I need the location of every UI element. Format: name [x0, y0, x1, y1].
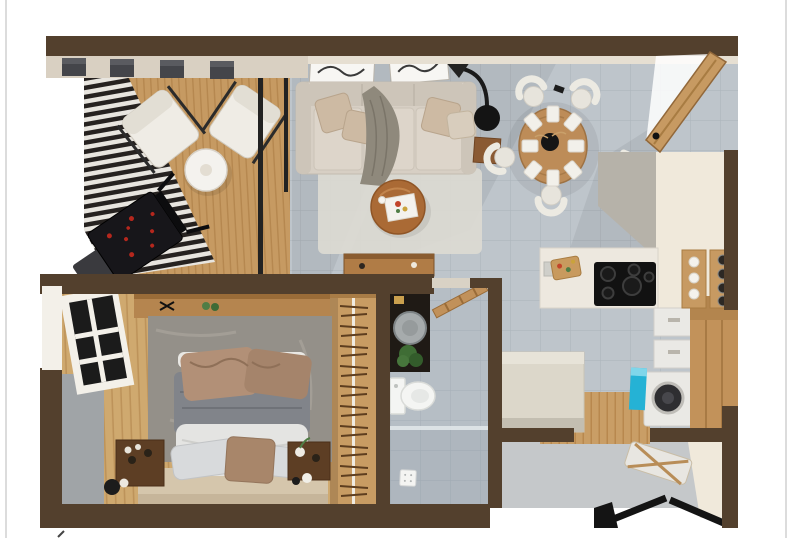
sofa	[296, 82, 476, 186]
console-table	[344, 254, 434, 276]
tray-food	[396, 209, 400, 213]
glass-wall-frame	[258, 60, 263, 276]
toss-pillow	[446, 110, 475, 139]
wall-kitchen-bottom	[502, 428, 574, 442]
tray-food	[403, 207, 408, 212]
sofa-armrest	[296, 82, 311, 174]
bottle	[689, 289, 699, 299]
wall-right-lower	[722, 406, 738, 528]
burner	[623, 277, 641, 295]
wall-kitchen-bottom	[650, 428, 724, 442]
burner	[603, 288, 614, 299]
glass-partition	[390, 426, 488, 430]
tray-food	[395, 201, 401, 207]
shower-area	[390, 430, 488, 508]
nightstand-right	[288, 438, 330, 485]
wall-bath-top	[470, 278, 488, 288]
washing-machine	[644, 372, 692, 426]
counter-run	[540, 248, 658, 308]
drawer-handle	[668, 350, 680, 354]
shelf-bottle	[211, 303, 219, 311]
cutting-board	[550, 256, 581, 281]
burner	[645, 273, 654, 282]
cooktop	[594, 262, 656, 306]
bath-door-threshold	[432, 278, 470, 288]
wall-top	[46, 36, 738, 56]
glass-wall-frame	[284, 60, 288, 192]
sink-basin	[402, 320, 418, 336]
room-living	[296, 52, 501, 276]
burner	[601, 267, 615, 281]
burner	[629, 265, 640, 276]
flower	[379, 197, 386, 204]
wall-wardrobe-bath	[376, 286, 390, 508]
card-border-right	[785, 0, 787, 538]
card-border-left	[5, 0, 7, 538]
wall-bottom	[40, 504, 490, 528]
decor-sphere	[292, 477, 300, 485]
bottle	[689, 257, 699, 267]
potted-plant	[409, 353, 423, 367]
wall-mid	[40, 274, 434, 294]
floorplan-render	[0, 0, 800, 538]
floor-plan-image	[0, 0, 800, 538]
room-wardrobe	[330, 288, 376, 510]
table-center	[200, 164, 212, 176]
decor-figure	[120, 479, 129, 488]
wall-bath-top	[390, 278, 432, 288]
accent-pillow	[225, 436, 276, 483]
door-handle	[653, 133, 660, 140]
shelf-bottle	[202, 302, 210, 310]
wall-right-upper	[724, 150, 738, 310]
soap-dish	[394, 296, 404, 304]
blue-bin	[629, 368, 647, 411]
toilet-seat	[411, 389, 429, 403]
bottle	[689, 273, 699, 283]
decor-figure	[302, 473, 312, 483]
artifact-mark	[58, 531, 64, 537]
wall-bath-kitchen	[488, 278, 502, 508]
throw-rumple	[243, 348, 313, 400]
lamp-shade	[474, 105, 500, 131]
kitchen-island	[500, 352, 584, 432]
gray-accent-wall	[62, 374, 104, 506]
shower-drain	[400, 470, 417, 487]
potted-plant	[397, 355, 409, 367]
outer-panel	[42, 286, 62, 370]
vanity	[390, 288, 430, 372]
room-bedroom	[60, 286, 332, 508]
decor-tray	[384, 194, 418, 222]
flush-button	[394, 384, 398, 388]
decor-sphere	[104, 479, 120, 495]
wall-left	[40, 368, 62, 512]
washer-drum	[662, 392, 674, 404]
drawer-handle	[668, 318, 680, 322]
island-top	[500, 352, 584, 364]
